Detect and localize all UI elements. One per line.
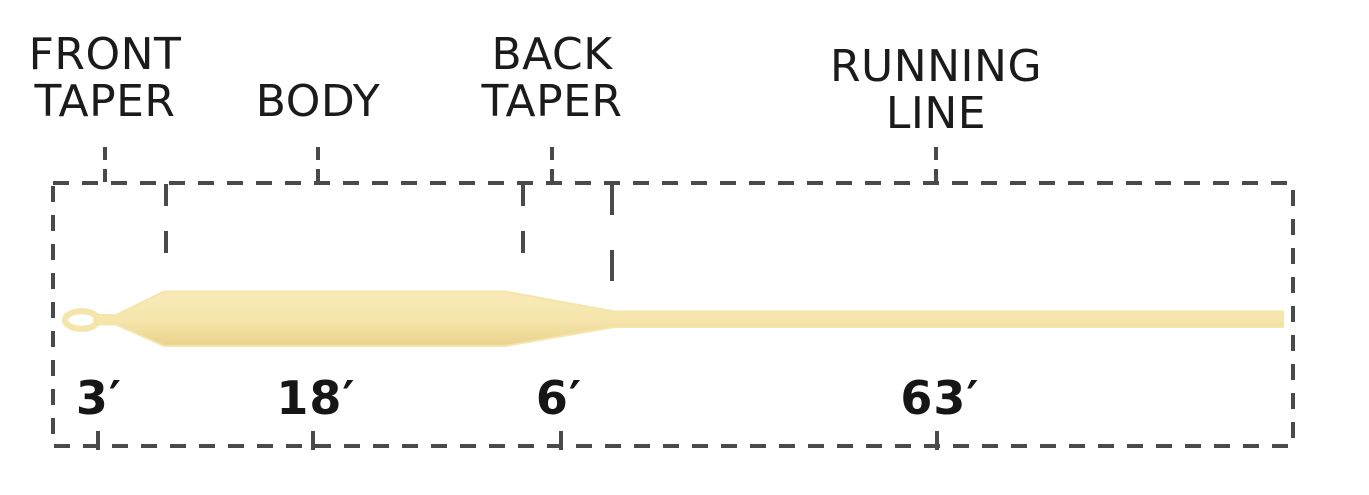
length-label-body: 18′ [276, 371, 355, 425]
section-label-line: TAPER [29, 78, 182, 125]
section-label-line: LINE [830, 90, 1042, 137]
section-label-back-taper: BACK TAPER [482, 31, 623, 125]
section-label-line: TAPER [482, 78, 623, 125]
section-label-running-line: RUNNING LINE [830, 43, 1042, 137]
diagram-canvas [0, 0, 1369, 495]
section-label-line: RUNNING [830, 43, 1042, 90]
length-label-back-taper: 6′ [536, 371, 582, 425]
section-label-line: FRONT [29, 31, 182, 78]
fly-line-shape [94, 292, 1283, 347]
section-label-line: BODY [256, 78, 380, 125]
section-label-front-taper: FRONT TAPER [29, 31, 182, 125]
section-label-body: BODY [256, 78, 380, 125]
length-label-running-line: 63′ [900, 371, 979, 425]
fly-line-profile [65, 292, 1283, 347]
fly-line-taper-diagram: FRONT TAPER BODY BACK TAPER RUNNING LINE… [0, 0, 1369, 495]
section-label-line: BACK [482, 31, 623, 78]
length-label-front-taper: 3′ [76, 371, 122, 425]
